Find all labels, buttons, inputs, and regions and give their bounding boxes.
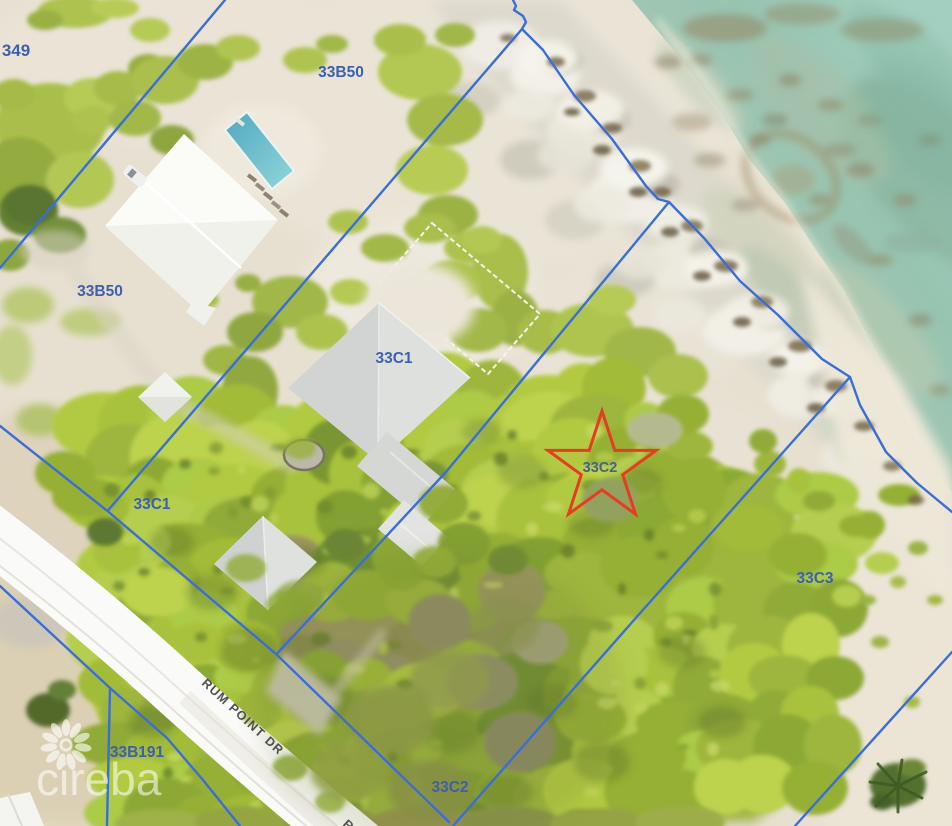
svg-text:33C2: 33C2 [431, 779, 468, 796]
svg-text:33B50: 33B50 [318, 64, 364, 81]
svg-text:33C2: 33C2 [583, 460, 618, 476]
svg-text:cireba: cireba [36, 753, 162, 805]
svg-text:33C1: 33C1 [133, 496, 170, 513]
svg-text:33C3: 33C3 [796, 570, 833, 587]
svg-text:33C1: 33C1 [375, 350, 412, 367]
svg-text:349: 349 [2, 41, 30, 60]
svg-text:33B50: 33B50 [77, 283, 123, 300]
